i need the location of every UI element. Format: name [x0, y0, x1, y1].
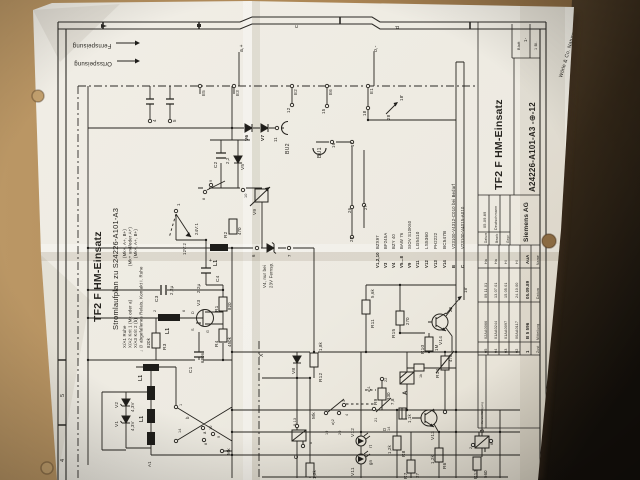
schematic-photo-svg: cd54FernspeisungOrtsspeisung45E5E3E2E6E1…: [0, 0, 640, 480]
photo-of-schematic: cd54FernspeisungOrtsspeisung45E5E3E2E6E1…: [0, 0, 640, 480]
photo-vignette: [0, 0, 640, 480]
